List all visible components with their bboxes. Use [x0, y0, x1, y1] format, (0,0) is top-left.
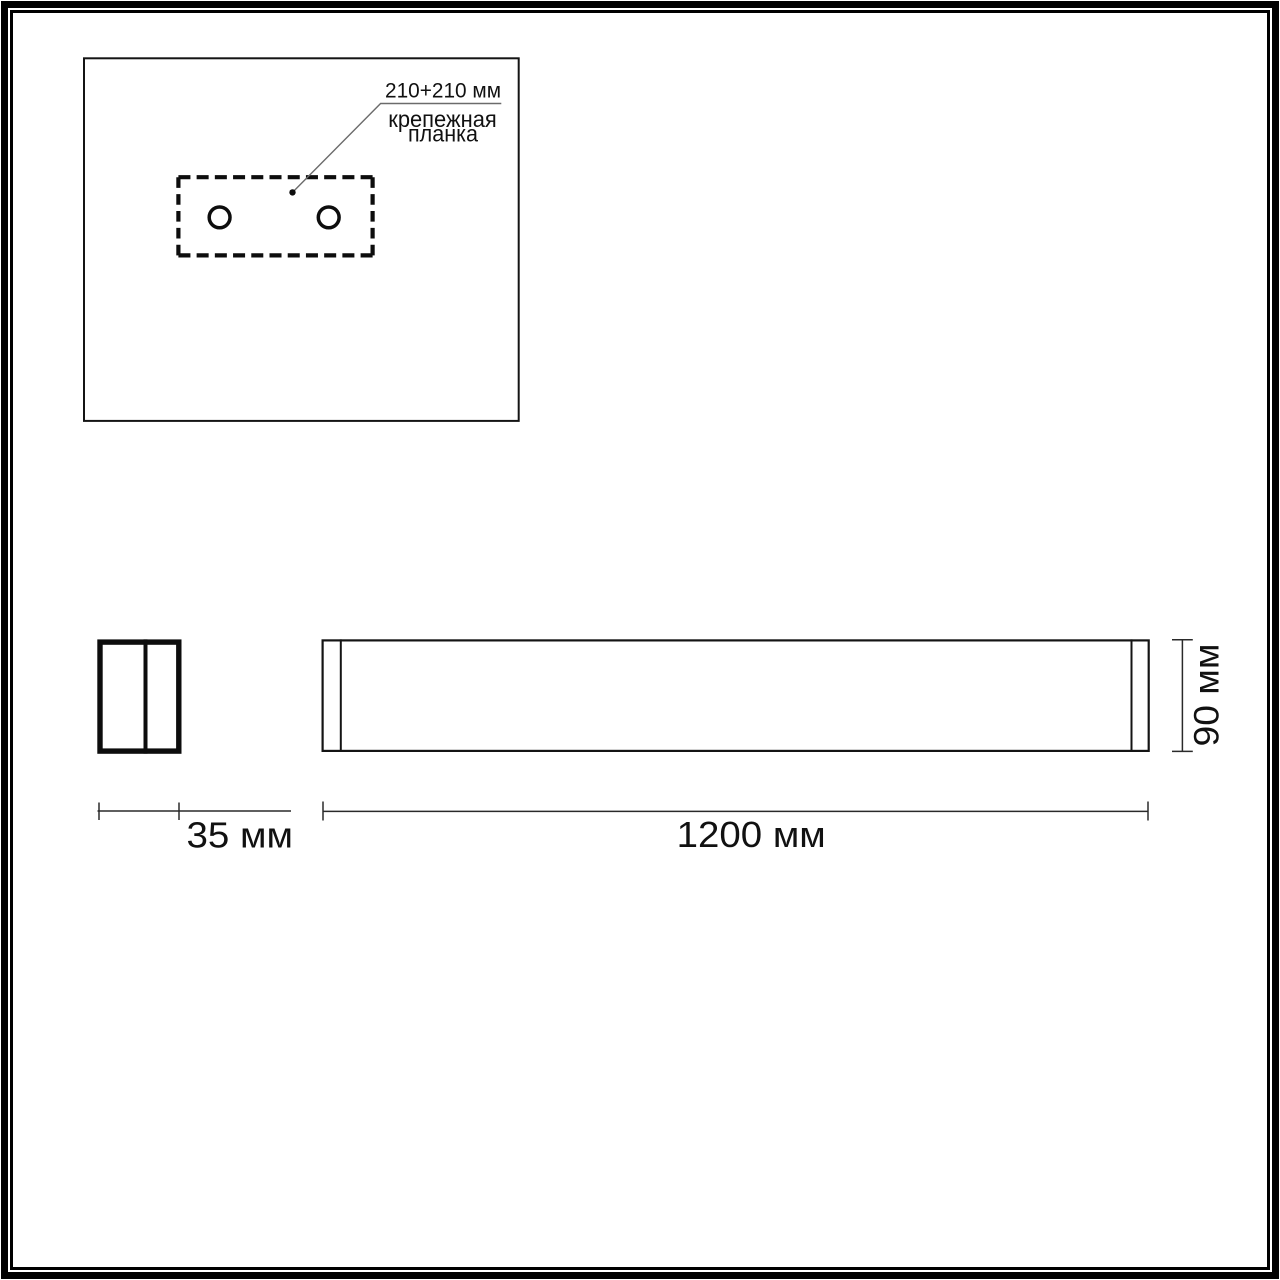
svg-text:35 мм: 35 мм	[187, 815, 294, 856]
svg-text:210+210 мм: 210+210 мм	[385, 78, 501, 103]
svg-text:1200 мм: 1200 мм	[677, 814, 826, 855]
svg-text:90 мм: 90 мм	[1188, 644, 1227, 747]
svg-text:планка: планка	[408, 121, 478, 147]
